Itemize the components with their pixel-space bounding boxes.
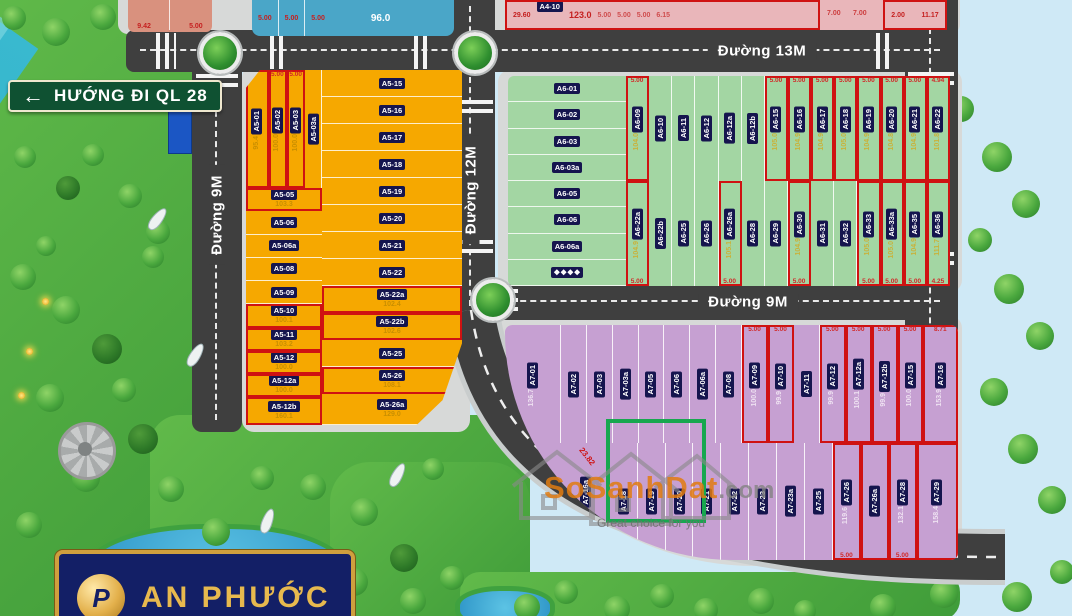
plot-a6-22: 4.94A6-22101.8 bbox=[927, 76, 950, 181]
watermark-tagline: Great choice for you bbox=[597, 516, 705, 530]
plot-a6-31: A6-31 bbox=[811, 181, 834, 286]
plot-a6-21: 5.00A6-21104.9 bbox=[904, 76, 927, 181]
plot-a6-22b: A6-22b bbox=[649, 181, 672, 286]
strip-blue: 5.00 5.00 5.00 96.0 bbox=[252, 0, 454, 36]
plot-a5-25: A5-25 bbox=[322, 340, 462, 367]
strip-pink-right: 29.60 A4-10 123.0 5.00 5.00 5.00 6.15 7.… bbox=[505, 0, 947, 30]
plot-a6-33a: 5.00A6-33a105.0 bbox=[881, 181, 904, 286]
plot-a5-03a: A5-03a bbox=[305, 70, 322, 188]
plot-a6-09: 5.00A6-09104.0 bbox=[626, 76, 649, 181]
logo-title: AN PHƯỚC bbox=[141, 581, 330, 615]
plot-a5-16: A5-16 bbox=[322, 97, 462, 124]
ornate-stamp-label: ❖❖❖❖ bbox=[508, 260, 626, 286]
plot-a7-08: A7-08 bbox=[716, 325, 742, 443]
a6-section-1: 5.00A6-09104.0A6-10A6-11A6-12A6-12aA6-12… bbox=[626, 76, 950, 181]
logo-monogram: P bbox=[92, 583, 109, 614]
dimension: 5.00 bbox=[311, 15, 325, 22]
crosswalk bbox=[156, 33, 176, 69]
plot-a6-30: 5.00A6-30104.9 bbox=[788, 181, 811, 286]
direction-sign: ← HƯỚNG ĐI QL 28 bbox=[8, 80, 222, 112]
dimension: 2.00 bbox=[891, 12, 905, 19]
plot-a5-20: A5-20 bbox=[322, 205, 462, 232]
plot-a6-28: A6-28 bbox=[742, 181, 765, 286]
plot-a7-16: 8.71A7-16153.9 bbox=[923, 325, 958, 443]
crosswalk bbox=[270, 33, 288, 69]
a5-section-2: A5-15A5-16A5-17A5-18A5-19A5-20A5-21A5-22… bbox=[322, 70, 462, 425]
plot-a6-36: 4.25A6-36111.7 bbox=[927, 181, 950, 286]
a6-section-2: 5.00A6-22a104.9A6-22bA6-25A6-265.00A6-26… bbox=[626, 181, 950, 286]
light-icon bbox=[42, 298, 49, 305]
plot-a5-26: A5-26108.1 bbox=[322, 367, 462, 394]
block-a6: A6-01A6-02A6-03A6-03aA6-05A6-06A6-06a❖❖❖… bbox=[508, 76, 950, 286]
a5-section-1: A5-05103.3A5-06A5-06aA5-08A5-09A5-10100.… bbox=[246, 188, 322, 425]
plot-a6-05: A6-05 bbox=[508, 181, 626, 207]
plot-a6-22a: 5.00A6-22a104.9 bbox=[626, 181, 649, 286]
plot-a6-26: A6-26 bbox=[695, 181, 718, 286]
plot-a6-33: 5.00A6-33105.0 bbox=[857, 181, 880, 286]
road-label-12m-center: Đường 12M bbox=[463, 136, 480, 245]
plot-area: 96.0 bbox=[371, 13, 390, 24]
logo-emblem-icon: P bbox=[77, 574, 125, 616]
plot-a5-21: A5-21 bbox=[322, 232, 462, 259]
road-label-13m: Đường 13M bbox=[708, 43, 817, 60]
plot-a6-15: 5.00A6-15105.0 bbox=[765, 76, 788, 181]
plot-a6-12: A6-12 bbox=[695, 76, 718, 181]
plot-a5-08: A5-08 bbox=[246, 258, 322, 281]
plot-a6-01: A6-01 bbox=[508, 76, 626, 102]
strip-pink-left: 9.42 5.00 bbox=[128, 0, 212, 32]
plot-a7-25: A7-25 bbox=[805, 443, 833, 560]
plot-a6-20: 5.00A6-20104.8 bbox=[881, 76, 904, 181]
dimension: 5.00 bbox=[598, 12, 612, 19]
divider bbox=[169, 0, 170, 30]
plot-a6-06: A6-06 bbox=[508, 207, 626, 233]
watermark-brand-text: SoSanhDat bbox=[544, 470, 718, 505]
block-a5: A5-0195.45.00A5-02100.05.00A5-03100.0A5-… bbox=[246, 70, 462, 425]
plot-a7-12a: 5.00A7-12a100.1 bbox=[846, 325, 872, 443]
divider bbox=[304, 0, 305, 36]
plot-map-canvas: Đường 13M Đường 9M Đường 12M Đường 9M Đư… bbox=[0, 0, 1072, 616]
plot-a6-29: A6-29 bbox=[765, 181, 788, 286]
plot-a5-11: A5-11103.2 bbox=[246, 328, 322, 351]
plot-a6-12b: A6-12b bbox=[742, 76, 765, 181]
crosswalk bbox=[876, 33, 894, 69]
plot-a7-23a: A7-23a bbox=[777, 443, 805, 560]
plot-a5-15: A5-15 bbox=[322, 70, 462, 97]
dimension: 7.00 bbox=[827, 10, 841, 17]
plot-a4-10-group: 29.60 A4-10 123.0 5.00 5.00 5.00 6.15 bbox=[505, 0, 820, 30]
roundabout-tree-icon bbox=[454, 32, 496, 74]
plot-a7-11: A7-11 bbox=[794, 325, 820, 443]
plot-a5-10: A5-10100.1 bbox=[246, 304, 322, 327]
plot-a7-15: 5.00A7-15100.0 bbox=[898, 325, 924, 443]
plot-a5-01: A5-0195.4 bbox=[246, 70, 269, 188]
watermark-suffix: .com bbox=[718, 477, 774, 504]
plot-a6-03: A6-03 bbox=[508, 129, 626, 155]
road-label-9m-mid: Đường 9M bbox=[698, 294, 798, 311]
plot-a5-17: A5-17 bbox=[322, 124, 462, 151]
watermark-brand: SoSanhDat.com bbox=[544, 470, 774, 506]
plot-a5-22: A5-22 bbox=[322, 259, 462, 286]
dimension: 5.00 bbox=[637, 12, 651, 19]
plot-a7-12: 5.00A7-1299.9 bbox=[820, 325, 846, 443]
dimension: 5.00 bbox=[285, 15, 299, 22]
plot-group-right: 2.00 11.17 bbox=[883, 0, 947, 30]
a7-section-0: A7-01136.7A7-02A7-03A7-03aA7-05A7-06A7-0… bbox=[505, 325, 958, 443]
dimension: 29.60 bbox=[513, 12, 531, 19]
divider bbox=[278, 0, 279, 36]
plot-a6-25: A6-25 bbox=[672, 181, 695, 286]
plot-a4-10: A4-10 bbox=[537, 1, 563, 12]
plot-a5-12a: A5-12a100.0 bbox=[246, 374, 322, 397]
crosswalk bbox=[414, 33, 432, 69]
plot-a6-06a: A6-06a bbox=[508, 234, 626, 260]
plot-a7-26: 5.00A7-26119.6 bbox=[833, 443, 861, 560]
an-phuoc-logo: P AN PHƯỚC bbox=[55, 550, 355, 616]
plot-a6-17: 5.00A6-17104.9 bbox=[811, 76, 834, 181]
plot-a6-10: A6-10 bbox=[649, 76, 672, 181]
plot-a6-12a: A6-12a bbox=[719, 76, 742, 181]
plot-a5-12: A5-12100.0 bbox=[246, 351, 322, 374]
plot-a5-18: A5-18 bbox=[322, 151, 462, 178]
plot-a6-11: A6-11 bbox=[672, 76, 695, 181]
centerline-13m bbox=[140, 49, 940, 51]
plot-a7-26a: A7-26a bbox=[861, 443, 889, 560]
road-label-9m-left: Đường 9M bbox=[209, 165, 226, 265]
plot-a7-01: A7-01136.7 bbox=[505, 325, 561, 443]
plot-a7-29: A7-29158.4 bbox=[917, 443, 958, 560]
plot-a7-12b: 5.00A7-12b99.9 bbox=[872, 325, 898, 443]
plot-a7-02: A7-02 bbox=[561, 325, 587, 443]
plot-a6-03a: A6-03a bbox=[508, 155, 626, 181]
plot-a7-09: 5.00A7-09100.0 bbox=[742, 325, 768, 443]
dimension: 5.00 bbox=[258, 15, 272, 22]
roundabout-tree-icon bbox=[472, 279, 514, 321]
plot-a5-12b: A5-12b160.1 bbox=[246, 397, 322, 425]
dimension: 5.00 bbox=[617, 12, 631, 19]
plot-a6-19: 5.00A6-19104.9 bbox=[857, 76, 880, 181]
plot-a5-22a: A5-22a102.4 bbox=[322, 286, 462, 313]
plot-area: 123.0 bbox=[569, 10, 592, 20]
plot-a5-05: A5-05103.3 bbox=[246, 188, 322, 211]
plot-a7-28: 5.00A7-28132.1 bbox=[889, 443, 917, 560]
fountain-icon bbox=[58, 422, 116, 480]
light-icon bbox=[26, 348, 33, 355]
plot-a5-03: 5.00A5-03100.0 bbox=[287, 70, 305, 188]
plot-a5-06a: A5-06a bbox=[246, 235, 322, 258]
dimension: 11.17 bbox=[922, 12, 939, 19]
plot-a6-02: A6-02 bbox=[508, 102, 626, 128]
plot-a5-02: 5.00A5-02100.0 bbox=[269, 70, 287, 188]
plot-a6-18: 5.00A6-18105.0 bbox=[834, 76, 857, 181]
plot-a6-16: 5.00A6-16104.9 bbox=[788, 76, 811, 181]
plot-a5-22b: A5-22b102.6 bbox=[322, 313, 462, 340]
light-icon bbox=[18, 392, 25, 399]
roundabout-tree-icon bbox=[199, 32, 241, 74]
plot-a5-09: A5-09 bbox=[246, 281, 322, 304]
plot-a7-10: 5.00A7-1099.9 bbox=[768, 325, 794, 443]
plot-a6-32: A6-32 bbox=[834, 181, 857, 286]
plot-a6-35: 5.00A6-35104.9 bbox=[904, 181, 927, 286]
dimension: 9.42 bbox=[137, 23, 151, 30]
dimension: 6.15 bbox=[656, 12, 670, 19]
plot-a5-06: A5-06 bbox=[246, 211, 322, 234]
sign-label: HƯỚNG ĐI QL 28 bbox=[54, 86, 208, 106]
plot-a5-19: A5-19 bbox=[322, 178, 462, 205]
plot-a6-26a: 5.00A6-26a105.1 bbox=[719, 181, 742, 286]
dimension: 5.00 bbox=[189, 23, 203, 30]
a6-section-0: A6-01A6-02A6-03A6-03aA6-05A6-06A6-06a❖❖❖… bbox=[508, 76, 626, 286]
dimension: 7.00 bbox=[853, 10, 867, 17]
left-arrow-icon: ← bbox=[22, 85, 44, 107]
a5-section-0: A5-0195.45.00A5-02100.05.00A5-03100.0A5-… bbox=[246, 70, 322, 188]
